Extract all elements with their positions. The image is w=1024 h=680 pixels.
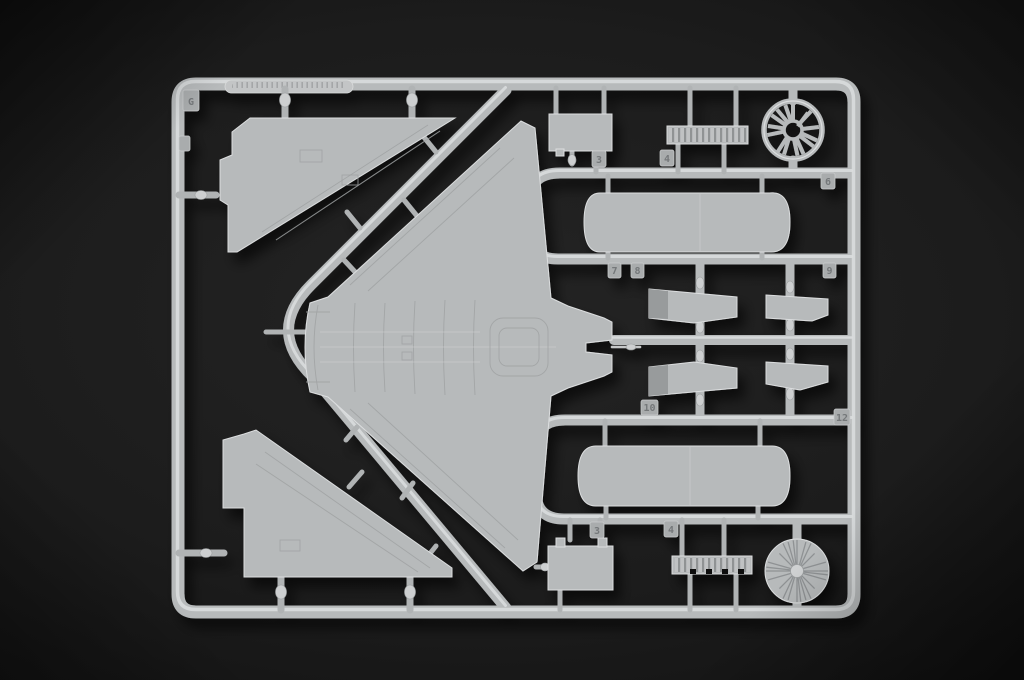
sprue-illustration: G 3 4 6 7 8	[0, 0, 1024, 680]
part-tag: 3	[592, 151, 606, 167]
svg-text:12: 12	[836, 413, 848, 424]
svg-text:8: 8	[634, 266, 640, 277]
part-tag: 3	[590, 522, 604, 538]
blank-tab	[179, 136, 190, 151]
equipment-panel-bottom-part	[548, 538, 613, 590]
model-kit-sprue-photo: G 3 4 6 7 8	[0, 0, 1024, 680]
sprue-letter-tag: G	[183, 90, 199, 111]
part-tag: 7	[608, 263, 621, 278]
svg-text:10: 10	[643, 403, 655, 414]
part-tag: 8	[631, 263, 644, 278]
svg-text:7: 7	[611, 266, 617, 277]
sprue-letter: G	[188, 97, 194, 108]
turbine-fan-disc-part	[765, 539, 829, 603]
engine-fan-ring-part	[764, 101, 822, 159]
svg-text:3: 3	[596, 155, 602, 166]
intake-duct-lower-part	[578, 446, 790, 506]
intake-duct-upper-part	[584, 193, 790, 252]
part-tag: 12	[834, 409, 850, 425]
vent-grille-top-part	[667, 126, 748, 144]
embossed-badge	[225, 80, 353, 93]
intake-ramp-2	[649, 362, 737, 396]
part-tag: 6	[821, 173, 835, 189]
sprue: G 3 4 6 7 8	[178, 80, 855, 612]
svg-text:4: 4	[664, 154, 670, 165]
part-tag: 10	[641, 400, 658, 415]
intake-ramp-4	[766, 362, 828, 390]
part-tag: 4	[664, 521, 678, 537]
svg-text:9: 9	[826, 266, 832, 277]
svg-text:6: 6	[825, 177, 831, 188]
vent-grille-bottom-part	[672, 556, 752, 574]
equipment-panel-top-part	[549, 114, 612, 156]
intake-ramp-3	[766, 295, 828, 321]
part-tag: 9	[823, 263, 836, 278]
svg-text:3: 3	[594, 526, 600, 537]
part-tag: 4	[660, 150, 674, 166]
svg-text:4: 4	[668, 525, 674, 536]
intake-ramp-1	[649, 289, 737, 323]
